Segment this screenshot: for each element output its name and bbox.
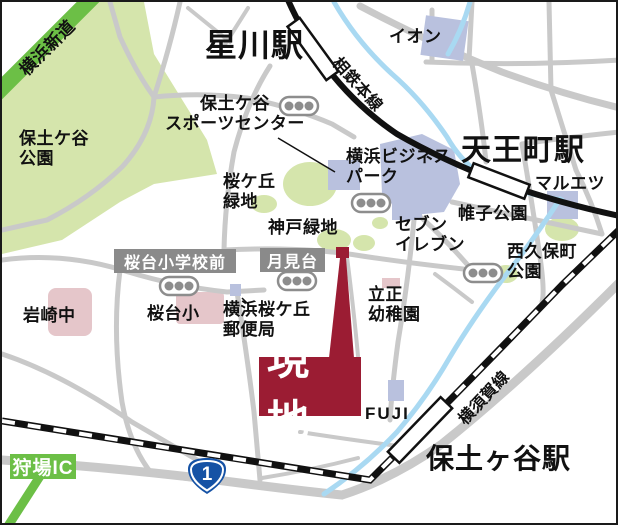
hoshikawa-station-symbol — [288, 18, 339, 80]
park-areas — [2, 2, 579, 283]
tennocho-station-symbol — [468, 163, 529, 199]
location-map: 1 横浜新道 保土ケ谷 公園 星川駅 イオン 相鉄本線 保土ケ谷 スポーツセンタ… — [0, 0, 618, 525]
kariba-ic-label: 狩場IC — [10, 454, 76, 479]
traffic-signal-icon — [464, 264, 502, 282]
route-1-number: 1 — [202, 464, 213, 485]
tsukimidai-stop-label: 月見台 — [260, 248, 325, 272]
traffic-signal-icon — [160, 277, 198, 295]
site-marker-label: 現地 — [259, 357, 361, 416]
traffic-signal-icon — [280, 97, 318, 115]
route-1-shield: 1 — [188, 458, 226, 494]
traffic-signal-icon — [278, 272, 316, 290]
traffic-signal-icon — [352, 194, 390, 212]
sakuradai-shogakko-mae-stop-label: 桜台小学校前 — [114, 249, 236, 273]
